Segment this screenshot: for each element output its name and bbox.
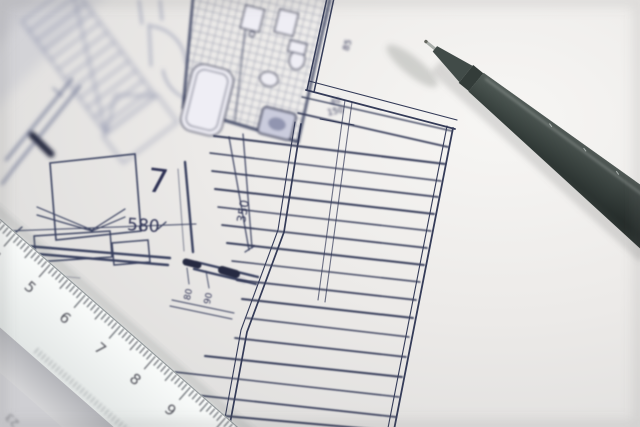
dimension-580: 580	[126, 215, 160, 237]
door-jamb-poche-2	[222, 270, 236, 274]
photo-canvas: 7 580 350 80 90 85 40 150	[0, 0, 640, 427]
photo-stage: 7 580 350 80 90 85 40 150	[0, 0, 640, 427]
drain	[250, 32, 255, 37]
door-jamb-poche	[186, 262, 198, 265]
